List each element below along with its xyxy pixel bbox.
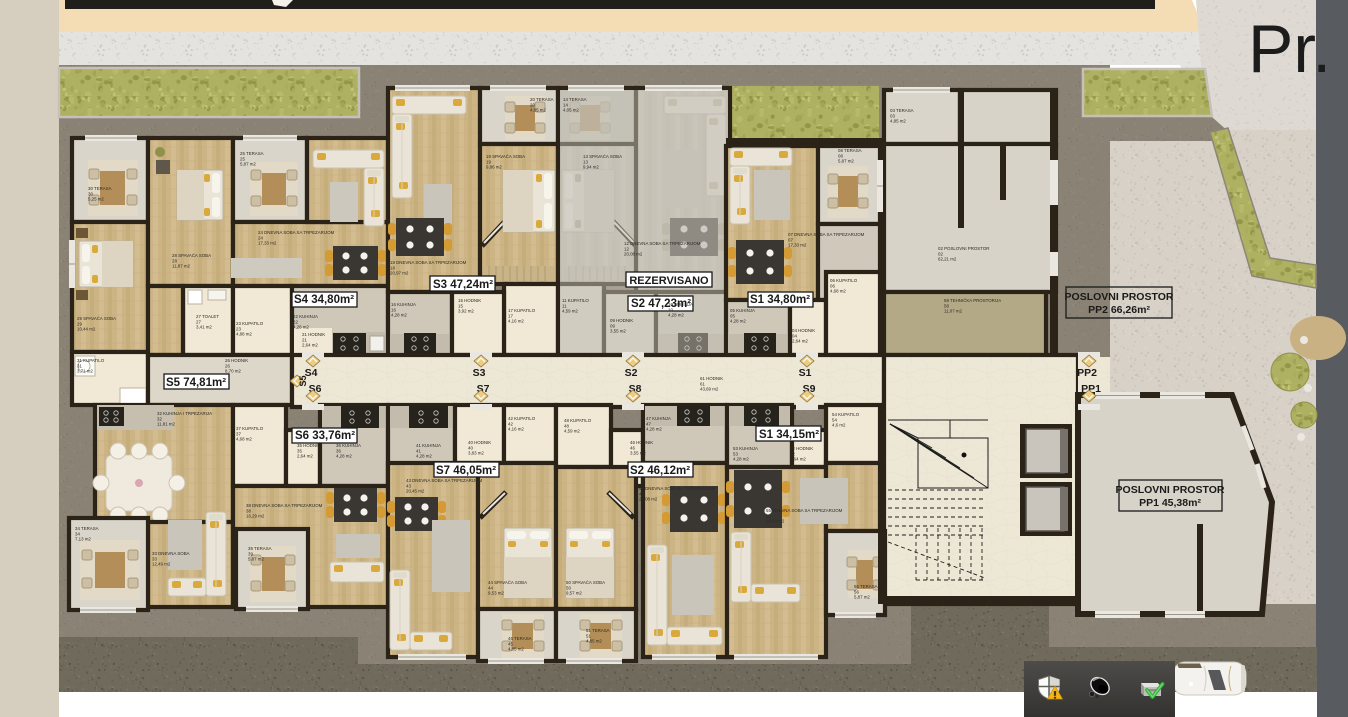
svg-text:4,59 m2: 4,59 m2 — [564, 429, 580, 434]
svg-text:24 DNEVNA SOBA SA TRPEZARIJOM: 24 DNEVNA SOBA SA TRPEZARIJOM — [258, 230, 335, 235]
svg-text:02: 02 — [938, 251, 943, 256]
svg-text:51 TERASA: 51 TERASA — [586, 628, 610, 633]
svg-text:27 TOALET: 27 TOALET — [196, 314, 219, 319]
svg-text:4,28 m2: 4,28 m2 — [293, 325, 309, 330]
svg-text:9,53 m2: 9,53 m2 — [488, 591, 504, 596]
svg-text:32: 32 — [157, 416, 162, 421]
svg-text:49 DNEVNA SOBA SA TRPEZARIJOM: 49 DNEVNA SOBA SA TRPEZARIJOM — [639, 486, 716, 491]
svg-text:06: 06 — [830, 283, 835, 288]
svg-text:53: 53 — [733, 451, 738, 456]
svg-text:19: 19 — [486, 159, 491, 164]
svg-text:4,6 m2: 4,6 m2 — [832, 423, 846, 428]
svg-text:5,25 m2: 5,25 m2 — [88, 197, 104, 202]
svg-text:PP2 66,26m²: PP2 66,26m² — [1088, 304, 1150, 316]
svg-text:37 KUPATILO: 37 KUPATILO — [236, 426, 264, 431]
svg-text:55: 55 — [766, 513, 771, 518]
svg-text:33 DNEVNA SOBA: 33 DNEVNA SOBA — [152, 551, 190, 556]
svg-text:4,16 m2: 4,16 m2 — [508, 319, 524, 324]
svg-text:27: 27 — [196, 319, 201, 324]
svg-text:13: 13 — [583, 159, 588, 164]
svg-text:4,85 m2: 4,85 m2 — [586, 639, 602, 644]
svg-text:S6 33,76m²: S6 33,76m² — [295, 430, 355, 442]
svg-text:44 SPAVAĆA SOBA: 44 SPAVAĆA SOBA — [488, 580, 527, 585]
svg-text:4,28 m2: 4,28 m2 — [391, 313, 407, 318]
svg-text:43,69 m2: 43,69 m2 — [700, 387, 719, 392]
svg-text:45: 45 — [508, 641, 513, 646]
svg-text:S1 34,15m²: S1 34,15m² — [759, 429, 819, 441]
svg-text:48 KUPATILO: 48 KUPATILO — [564, 418, 592, 423]
svg-text:15 HODNIK: 15 HODNIK — [458, 298, 481, 303]
svg-text:20,97 m2: 20,97 m2 — [390, 271, 409, 276]
svg-text:07: 07 — [788, 237, 793, 242]
svg-text:Pr.: Pr. — [1248, 11, 1331, 87]
svg-text:43: 43 — [406, 483, 411, 488]
svg-text:4,28 m2: 4,28 m2 — [733, 457, 749, 462]
svg-text:24: 24 — [258, 235, 263, 240]
svg-text:12,49 m2: 12,49 m2 — [152, 562, 171, 567]
svg-text:35 HODNIK: 35 HODNIK — [297, 443, 320, 448]
svg-text:22: 22 — [293, 319, 298, 324]
svg-text:25: 25 — [240, 156, 245, 161]
svg-text:39 TERASA: 39 TERASA — [248, 546, 272, 551]
svg-text:4,85 m2: 4,85 m2 — [890, 119, 906, 124]
svg-text:16: 16 — [391, 307, 396, 312]
svg-text:5,87 m2: 5,87 m2 — [240, 162, 256, 167]
svg-text:06 KUPATILO: 06 KUPATILO — [830, 278, 858, 283]
svg-text:50: 50 — [566, 585, 571, 590]
svg-text:S3: S3 — [473, 367, 486, 379]
svg-text:4,28 m2: 4,28 m2 — [336, 454, 352, 459]
svg-text:48: 48 — [564, 423, 569, 428]
svg-text:09: 09 — [610, 323, 615, 328]
svg-text:POSLOVNI PROSTOR: POSLOVNI PROSTOR — [1065, 291, 1174, 303]
svg-text:3,55 m2: 3,55 m2 — [630, 451, 646, 456]
svg-text:PP2: PP2 — [1077, 367, 1097, 379]
svg-text:03: 03 — [890, 113, 895, 118]
svg-text:16,29 m2: 16,29 m2 — [246, 514, 265, 519]
svg-text:5,87 m2: 5,87 m2 — [854, 595, 870, 600]
svg-text:14 TERASA: 14 TERASA — [563, 97, 587, 102]
svg-text:41 KUHINJA: 41 KUHINJA — [416, 443, 441, 448]
svg-text:S3 47,24m²: S3 47,24m² — [433, 279, 493, 291]
svg-text:46 HODNIK: 46 HODNIK — [630, 440, 653, 445]
svg-text:20: 20 — [530, 102, 535, 107]
svg-text:11,07 m2: 11,07 m2 — [944, 309, 963, 314]
svg-text:26 HODNIK: 26 HODNIK — [225, 358, 248, 363]
svg-text:49: 49 — [639, 491, 644, 496]
svg-text:31: 31 — [77, 363, 82, 368]
svg-text:17,33 m2: 17,33 m2 — [788, 243, 807, 248]
svg-text:15: 15 — [458, 303, 463, 308]
svg-text:35: 35 — [297, 448, 302, 453]
svg-text:25 TERASA: 25 TERASA — [240, 151, 264, 156]
svg-text:3,92 m2: 3,92 m2 — [458, 309, 474, 314]
svg-text:07 DNEVNA SOBA SA TRPEZARIJOM: 07 DNEVNA SOBA SA TRPEZARIJOM — [788, 232, 865, 237]
svg-text:11,87 m2: 11,87 m2 — [172, 264, 191, 269]
svg-text:09 HODNIK: 09 HODNIK — [610, 318, 633, 323]
svg-text:45 TERASA: 45 TERASA — [508, 636, 532, 641]
svg-text:03 TERASA: 03 TERASA — [890, 108, 914, 113]
svg-text:5,87 m2: 5,87 m2 — [838, 159, 854, 164]
svg-text:3,41 m2: 3,41 m2 — [196, 325, 212, 330]
svg-text:37: 37 — [236, 431, 241, 436]
svg-text:9,86 m2: 9,86 m2 — [486, 165, 502, 170]
svg-text:42 KUPATILO: 42 KUPATILO — [508, 416, 536, 421]
svg-text:16 KUHINJA: 16 KUHINJA — [391, 302, 416, 307]
svg-text:5,87 m2: 5,87 m2 — [248, 557, 264, 562]
svg-text:12 DNEVNA SOBA SA TRPEZARIJOM: 12 DNEVNA SOBA SA TRPEZARIJOM — [624, 241, 701, 246]
svg-text:4,28 m2: 4,28 m2 — [668, 313, 684, 318]
svg-text:39: 39 — [248, 551, 253, 556]
svg-text:62,21 m2: 62,21 m2 — [938, 257, 957, 262]
svg-text:4,88 m2: 4,88 m2 — [236, 332, 252, 337]
svg-text:7,13 m2: 7,13 m2 — [75, 537, 91, 542]
svg-text:29: 29 — [77, 321, 82, 326]
svg-text:S2: S2 — [625, 367, 638, 379]
svg-text:55 DNEVNA SOBA SA TRPEZARIJOM: 55 DNEVNA SOBA SA TRPEZARIJOM — [766, 508, 843, 513]
svg-text:S1: S1 — [799, 367, 812, 379]
svg-text:43 DNEVNA SOBA SA TRPEZARIJOM: 43 DNEVNA SOBA SA TRPEZARIJOM — [406, 478, 483, 483]
svg-text:56 TERASA: 56 TERASA — [854, 584, 878, 589]
svg-text:4,16 m2: 4,16 m2 — [508, 427, 524, 432]
svg-text:2,64 m2: 2,64 m2 — [302, 343, 318, 348]
svg-text:56: 56 — [854, 589, 859, 594]
svg-text:41: 41 — [416, 448, 421, 453]
svg-text:4,28 m2: 4,28 m2 — [730, 319, 746, 324]
svg-text:18: 18 — [390, 265, 395, 270]
svg-text:33: 33 — [152, 556, 157, 561]
svg-text:40: 40 — [468, 445, 473, 450]
svg-text:05 KUHINJA: 05 KUHINJA — [730, 308, 755, 313]
svg-text:05: 05 — [730, 313, 735, 318]
svg-text:04: 04 — [792, 333, 797, 338]
svg-text:17 KUPATILO: 17 KUPATILO — [508, 308, 536, 313]
svg-text:28: 28 — [172, 258, 177, 263]
svg-text:31 KUPATILO: 31 KUPATILO — [77, 358, 105, 363]
svg-text:11: 11 — [562, 303, 567, 308]
svg-text:20,45 m2: 20,45 m2 — [406, 489, 425, 494]
svg-text:16,68 m2: 16,68 m2 — [766, 519, 785, 524]
svg-text:2,64 m2: 2,64 m2 — [297, 454, 313, 459]
svg-text:30: 30 — [88, 191, 93, 196]
svg-text:9,57 m2: 9,57 m2 — [566, 591, 582, 596]
svg-text:4,68 m2: 4,68 m2 — [830, 289, 846, 294]
svg-text:2,64 m2: 2,64 m2 — [790, 457, 806, 462]
svg-text:12: 12 — [624, 246, 629, 251]
svg-text:S4 34,80m²: S4 34,80m² — [294, 294, 354, 306]
svg-text:46: 46 — [630, 445, 635, 450]
svg-text:14: 14 — [563, 102, 568, 107]
svg-text:61 HODNIK: 61 HODNIK — [700, 376, 723, 381]
svg-text:02 POSLOVNI PROSTOR: 02 POSLOVNI PROSTOR — [938, 246, 989, 251]
svg-text:28 SPAVAĆA SOBA: 28 SPAVAĆA SOBA — [172, 253, 211, 258]
svg-text:19 SPAVAĆA SOBA: 19 SPAVAĆA SOBA — [486, 154, 525, 159]
svg-text:2,64 m2: 2,64 m2 — [792, 339, 808, 344]
svg-text:18 DNEVNA SOBA SA TRPEZARIJOM: 18 DNEVNA SOBA SA TRPEZARIJOM — [390, 260, 467, 265]
svg-text:17,33 m2: 17,33 m2 — [258, 241, 277, 246]
svg-text:10,44 m2: 10,44 m2 — [77, 327, 96, 332]
svg-text:3,71 m2: 3,71 m2 — [77, 369, 93, 374]
svg-text:4,85 m2: 4,85 m2 — [530, 108, 546, 113]
svg-text:52 HODNIK: 52 HODNIK — [790, 446, 813, 451]
svg-text:20,08 m2: 20,08 m2 — [624, 252, 643, 257]
svg-text:S5 74,81m²: S5 74,81m² — [166, 377, 226, 389]
svg-text:61: 61 — [700, 381, 705, 386]
svg-text:51: 51 — [586, 633, 591, 638]
svg-text:47 KUHINJA: 47 KUHINJA — [646, 416, 671, 421]
svg-text:50 SPAVAĆA SOBA: 50 SPAVAĆA SOBA — [566, 580, 605, 585]
svg-text:53 KUHINJA: 53 KUHINJA — [733, 446, 758, 451]
svg-text:4,68 m2: 4,68 m2 — [236, 437, 252, 442]
svg-text:58 TEHNIČKA PROSTORIJA: 58 TEHNIČKA PROSTORIJA — [944, 298, 1001, 303]
svg-text:21 HODNIK: 21 HODNIK — [302, 332, 325, 337]
svg-text:4,28 m2: 4,28 m2 — [646, 427, 662, 432]
svg-text:54 KUPATILO: 54 KUPATILO — [832, 412, 860, 417]
svg-text:21: 21 — [302, 337, 307, 342]
svg-text:10: 10 — [668, 307, 673, 312]
svg-text:47: 47 — [646, 421, 651, 426]
svg-text:58: 58 — [944, 303, 949, 308]
svg-text:17: 17 — [508, 313, 513, 318]
svg-text:PP1 45,38m²: PP1 45,38m² — [1139, 497, 1201, 509]
svg-text:36 KUHINJA: 36 KUHINJA — [336, 443, 361, 448]
svg-text:4,59 m2: 4,59 m2 — [562, 309, 578, 314]
svg-text:S5: S5 — [298, 375, 308, 386]
svg-text:23: 23 — [236, 326, 241, 331]
svg-text:26: 26 — [225, 363, 230, 368]
svg-text:44: 44 — [488, 585, 493, 590]
svg-text:4,05 m2: 4,05 m2 — [563, 108, 579, 113]
svg-text:3,83 m2: 3,83 m2 — [468, 451, 484, 456]
svg-text:52: 52 — [790, 451, 795, 456]
svg-text:38 DNEVNA SOBA SA TRPEZARIJOM: 38 DNEVNA SOBA SA TRPEZARIJOM — [246, 503, 323, 508]
svg-text:04 HODNIK: 04 HODNIK — [792, 328, 815, 333]
svg-text:4,28 m2: 4,28 m2 — [416, 454, 432, 459]
svg-text:4,85 m2: 4,85 m2 — [508, 647, 524, 652]
svg-text:13 SPAVAĆA SOBA: 13 SPAVAĆA SOBA — [583, 154, 622, 159]
svg-text:34 TERASA: 34 TERASA — [75, 526, 99, 531]
svg-text:S2 46,12m²: S2 46,12m² — [630, 465, 690, 477]
svg-text:54: 54 — [832, 417, 837, 422]
svg-text:10 KUHINJA: 10 KUHINJA — [668, 302, 693, 307]
svg-text:20,08 m2: 20,08 m2 — [639, 497, 658, 502]
svg-text:08 TERASA: 08 TERASA — [838, 148, 862, 153]
svg-text:29 SPAVAĆA SOBA: 29 SPAVAĆA SOBA — [77, 316, 116, 321]
svg-text:9,94 m2: 9,94 m2 — [583, 165, 599, 170]
svg-text:11,81 m2: 11,81 m2 — [157, 422, 176, 427]
svg-text:20 TERASA: 20 TERASA — [530, 97, 554, 102]
svg-text:36: 36 — [336, 448, 341, 453]
svg-text:38: 38 — [246, 508, 251, 513]
svg-text:8,70 m2: 8,70 m2 — [225, 369, 241, 374]
svg-text:40 HODNIK: 40 HODNIK — [468, 440, 491, 445]
svg-text:POSLOVNI PROSTOR: POSLOVNI PROSTOR — [1116, 484, 1225, 496]
svg-text:S7 46,05m²: S7 46,05m² — [436, 465, 496, 477]
svg-text:22 KUHINJA: 22 KUHINJA — [293, 314, 318, 319]
svg-text:3,55 m2: 3,55 m2 — [610, 329, 626, 334]
svg-text:30 TERASA: 30 TERASA — [88, 186, 112, 191]
svg-text:11 KUPATILO: 11 KUPATILO — [562, 298, 589, 303]
svg-text:08: 08 — [838, 153, 843, 158]
svg-text:23 KUPATILO: 23 KUPATILO — [236, 321, 264, 326]
svg-text:42: 42 — [508, 421, 513, 426]
svg-text:34: 34 — [75, 531, 80, 536]
svg-text:S1 34,80m²: S1 34,80m² — [750, 294, 810, 306]
svg-text:REZERVISANO: REZERVISANO — [629, 275, 709, 287]
svg-text:32 KUHINJA I TRPEZARIJA: 32 KUHINJA I TRPEZARIJA — [157, 411, 212, 416]
